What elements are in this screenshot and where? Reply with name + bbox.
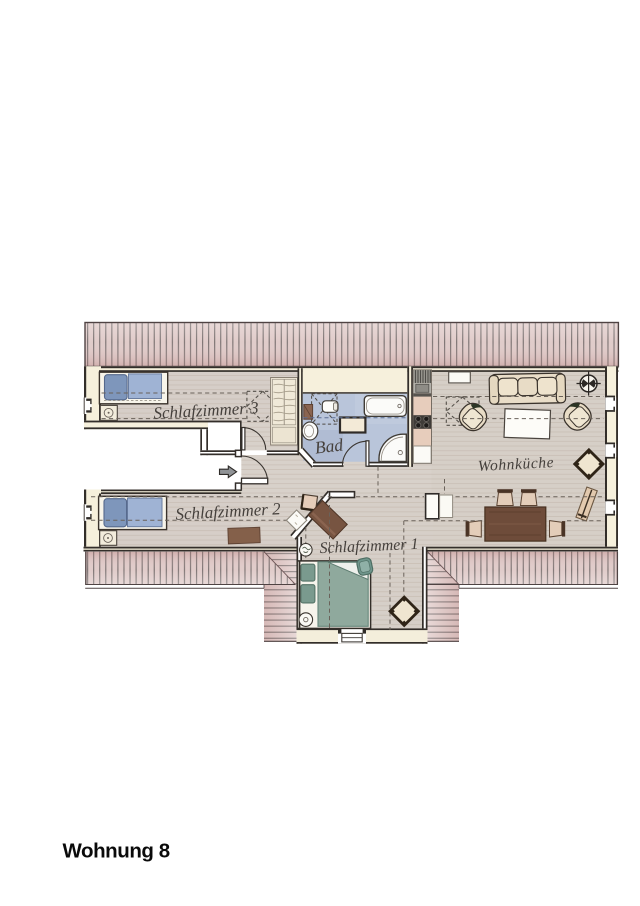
svg-text:Bad: Bad — [314, 434, 345, 457]
svg-text:Wohnung 8: Wohnung 8 — [63, 840, 170, 863]
